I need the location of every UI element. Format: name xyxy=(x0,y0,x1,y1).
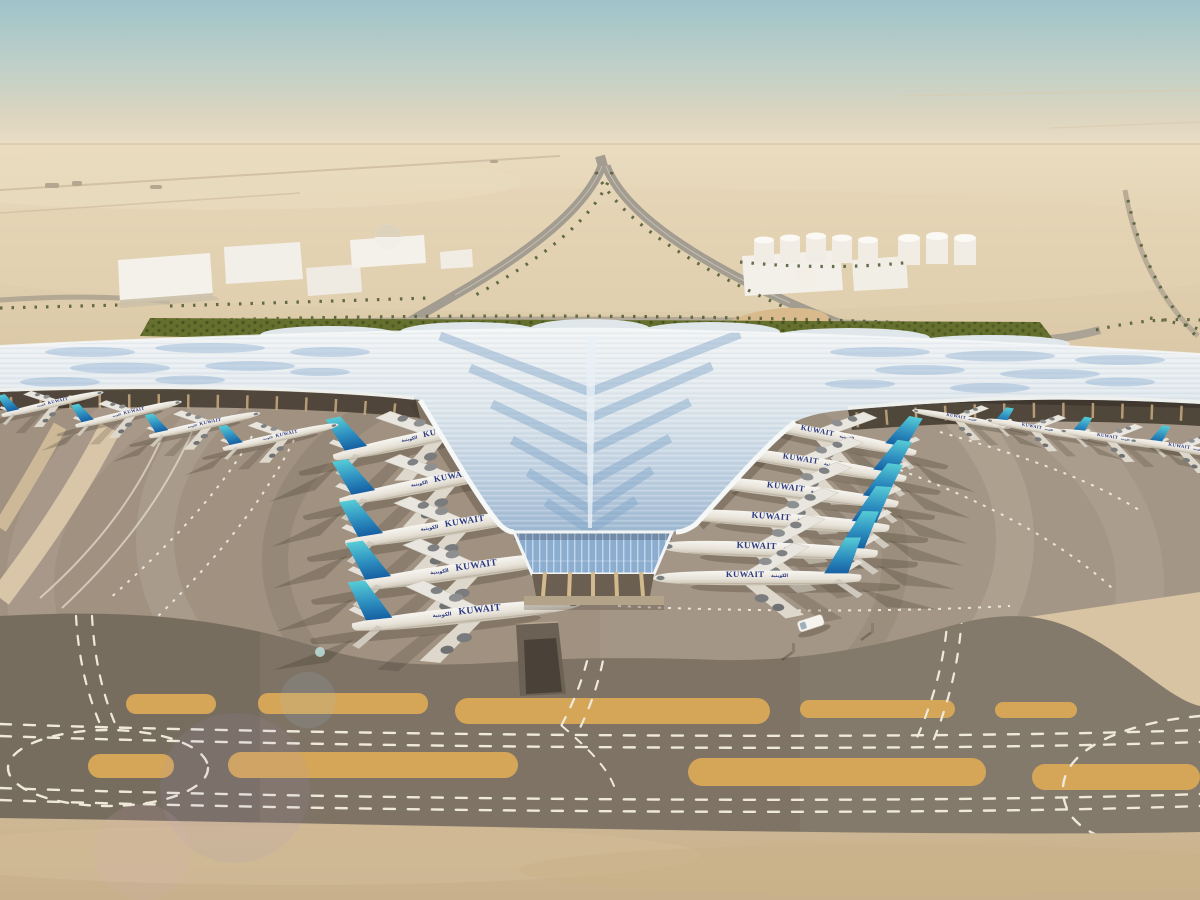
render-canvas: KUWAITالكويتيةKUWAITالكويتيةKUWAITالكويت… xyxy=(0,0,1200,900)
terminal-tip-facade xyxy=(514,532,672,610)
aircraft-title-arabic: الكويتية xyxy=(771,573,789,579)
service-ramp xyxy=(516,622,566,696)
airport-aerial-render: KUWAITالكويتيةKUWAITالكويتيةKUWAITالكويت… xyxy=(0,0,1200,900)
aircraft-title: KUWAIT xyxy=(726,569,765,579)
aircraft-title: KUWAIT xyxy=(736,540,777,551)
sky xyxy=(0,0,1200,150)
